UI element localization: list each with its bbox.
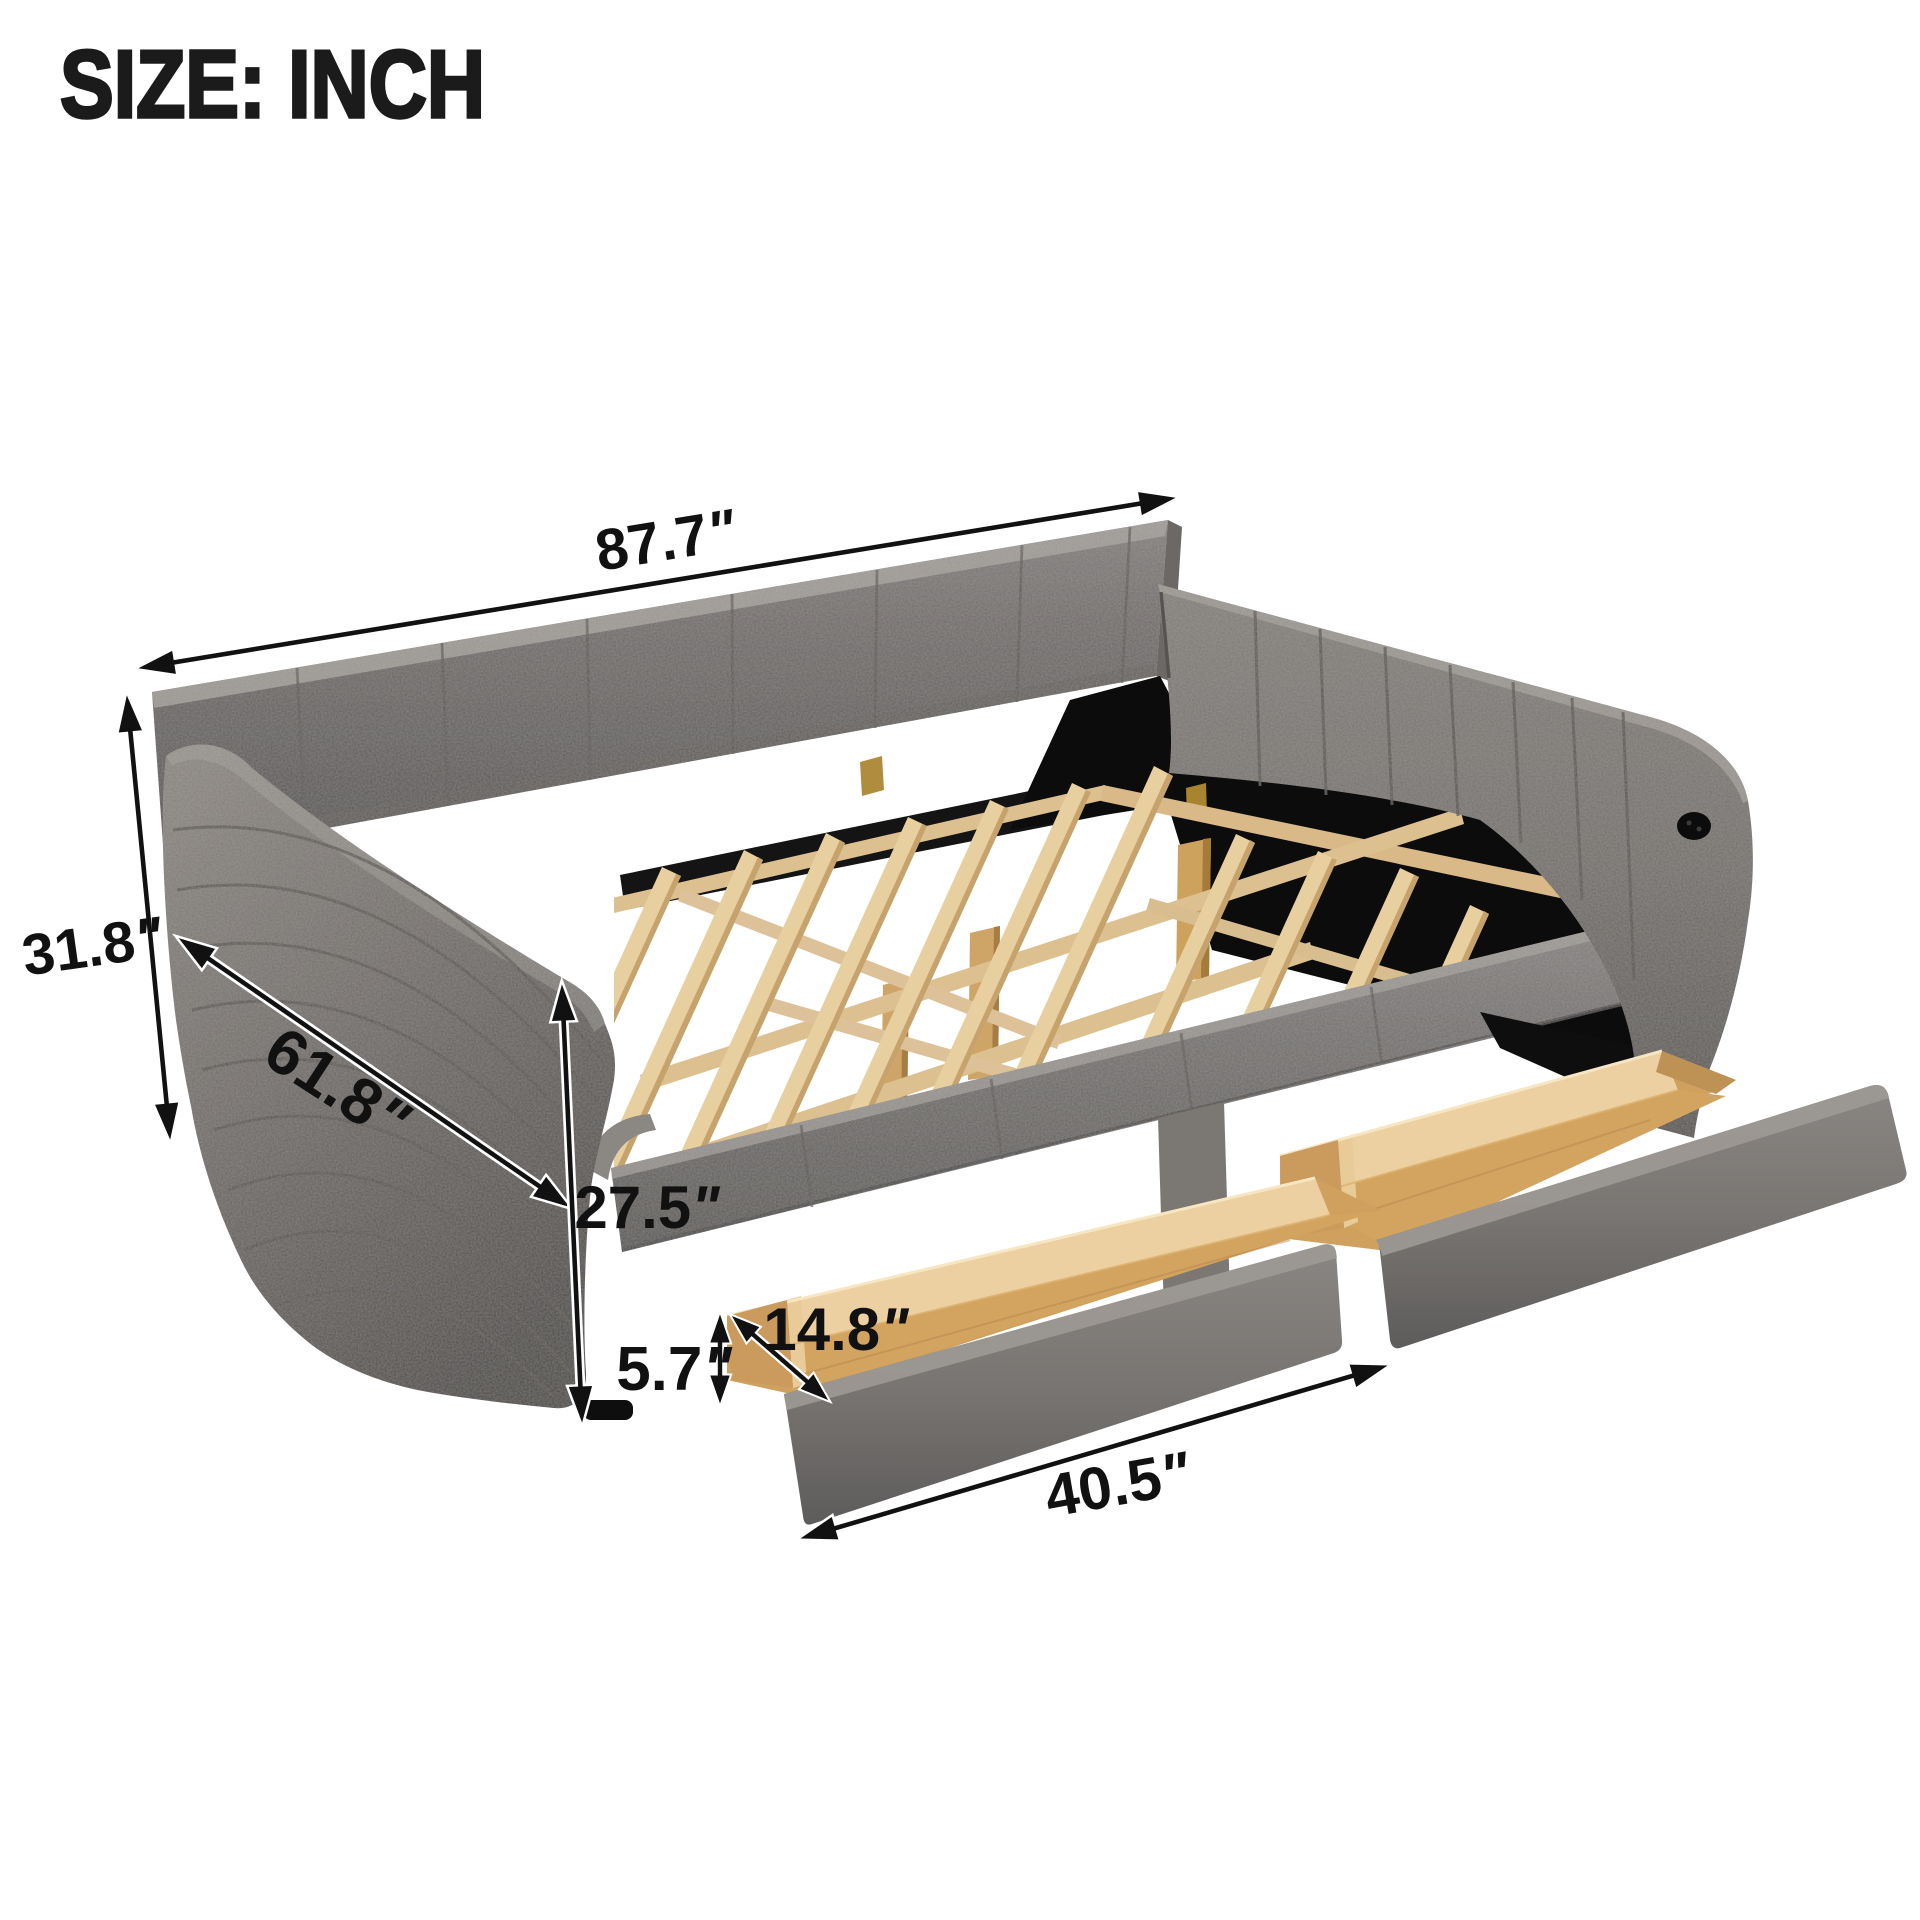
svg-text:27.5": 27.5" (574, 1174, 721, 1241)
svg-text:5.7": 5.7" (616, 1335, 733, 1404)
svg-text:SIZE: INCH: SIZE: INCH (60, 31, 485, 138)
svg-text:14.8": 14.8" (763, 1296, 910, 1363)
